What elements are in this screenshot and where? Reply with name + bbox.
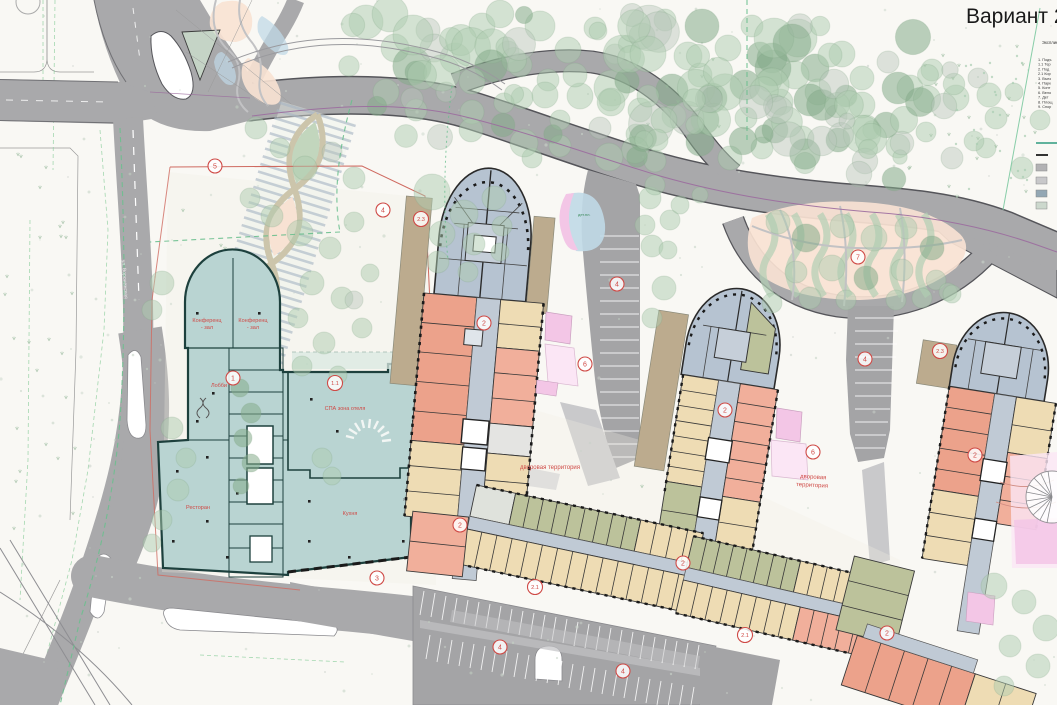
svg-text:5: 5: [213, 164, 217, 171]
svg-text:2.1 Кор: 2.1 Кор: [1038, 72, 1051, 76]
svg-text:Лобби: Лобби: [211, 383, 227, 389]
svg-text:2.1: 2.1: [741, 633, 749, 639]
svg-text:4: 4: [498, 645, 502, 652]
svg-text:4: 4: [621, 669, 625, 676]
svg-text:5. Конт: 5. Конт: [1038, 86, 1051, 90]
svg-text:2: 2: [482, 321, 486, 328]
svg-text:3. Въез: 3. Въез: [1038, 77, 1051, 81]
svg-text:Конференц: Конференц: [238, 318, 268, 324]
svg-text:2.3: 2.3: [417, 217, 425, 223]
svg-text:Конференц: Конференц: [192, 318, 222, 324]
svg-text:- зал: - зал: [201, 325, 213, 331]
svg-text:- зал: - зал: [247, 325, 259, 331]
svg-text:6: 6: [583, 362, 587, 369]
svg-text:Ресторан: Ресторан: [186, 505, 210, 511]
svg-text:2.1: 2.1: [531, 585, 539, 591]
svg-text:4. Парк: 4. Парк: [1038, 82, 1051, 86]
svg-text:8. Площ: 8. Площ: [1038, 100, 1053, 104]
svg-text:2.3: 2.3: [936, 349, 944, 355]
svg-text:1. Подъ: 1. Подъ: [1038, 58, 1052, 62]
svg-text:7. Дет: 7. Дет: [1038, 96, 1049, 100]
svg-text:1.1: 1.1: [331, 381, 339, 387]
svg-text:1.1 Тер: 1.1 Тер: [1038, 63, 1051, 67]
svg-text:СПА зона отеля: СПА зона отеля: [325, 406, 366, 412]
svg-text:7: 7: [856, 255, 860, 262]
svg-text:4: 4: [863, 357, 867, 364]
svg-text:6: 6: [811, 450, 815, 457]
svg-text:дет.пл.: дет.пл.: [578, 212, 591, 217]
svg-text:6. Вело: 6. Вело: [1038, 91, 1051, 95]
svg-text:2: 2: [723, 408, 727, 415]
svg-text:4: 4: [615, 282, 619, 289]
svg-text:дворовая территория: дворовая территория: [520, 465, 580, 471]
svg-text:1: 1: [231, 376, 235, 383]
svg-text:2. Под: 2. Под: [1038, 67, 1050, 71]
svg-text:9. Спор: 9. Спор: [1038, 105, 1051, 109]
svg-text:Кухня: Кухня: [343, 511, 358, 517]
svg-text:3: 3: [375, 576, 379, 583]
svg-text:Вариант 2: Вариант 2: [966, 5, 1057, 28]
svg-text:2: 2: [973, 453, 977, 460]
svg-text:2: 2: [885, 631, 889, 638]
svg-text:2: 2: [458, 523, 462, 530]
svg-text:4: 4: [381, 208, 385, 215]
svg-text:Экспликация: Экспликация: [1042, 40, 1057, 45]
svg-text:2: 2: [681, 561, 685, 568]
